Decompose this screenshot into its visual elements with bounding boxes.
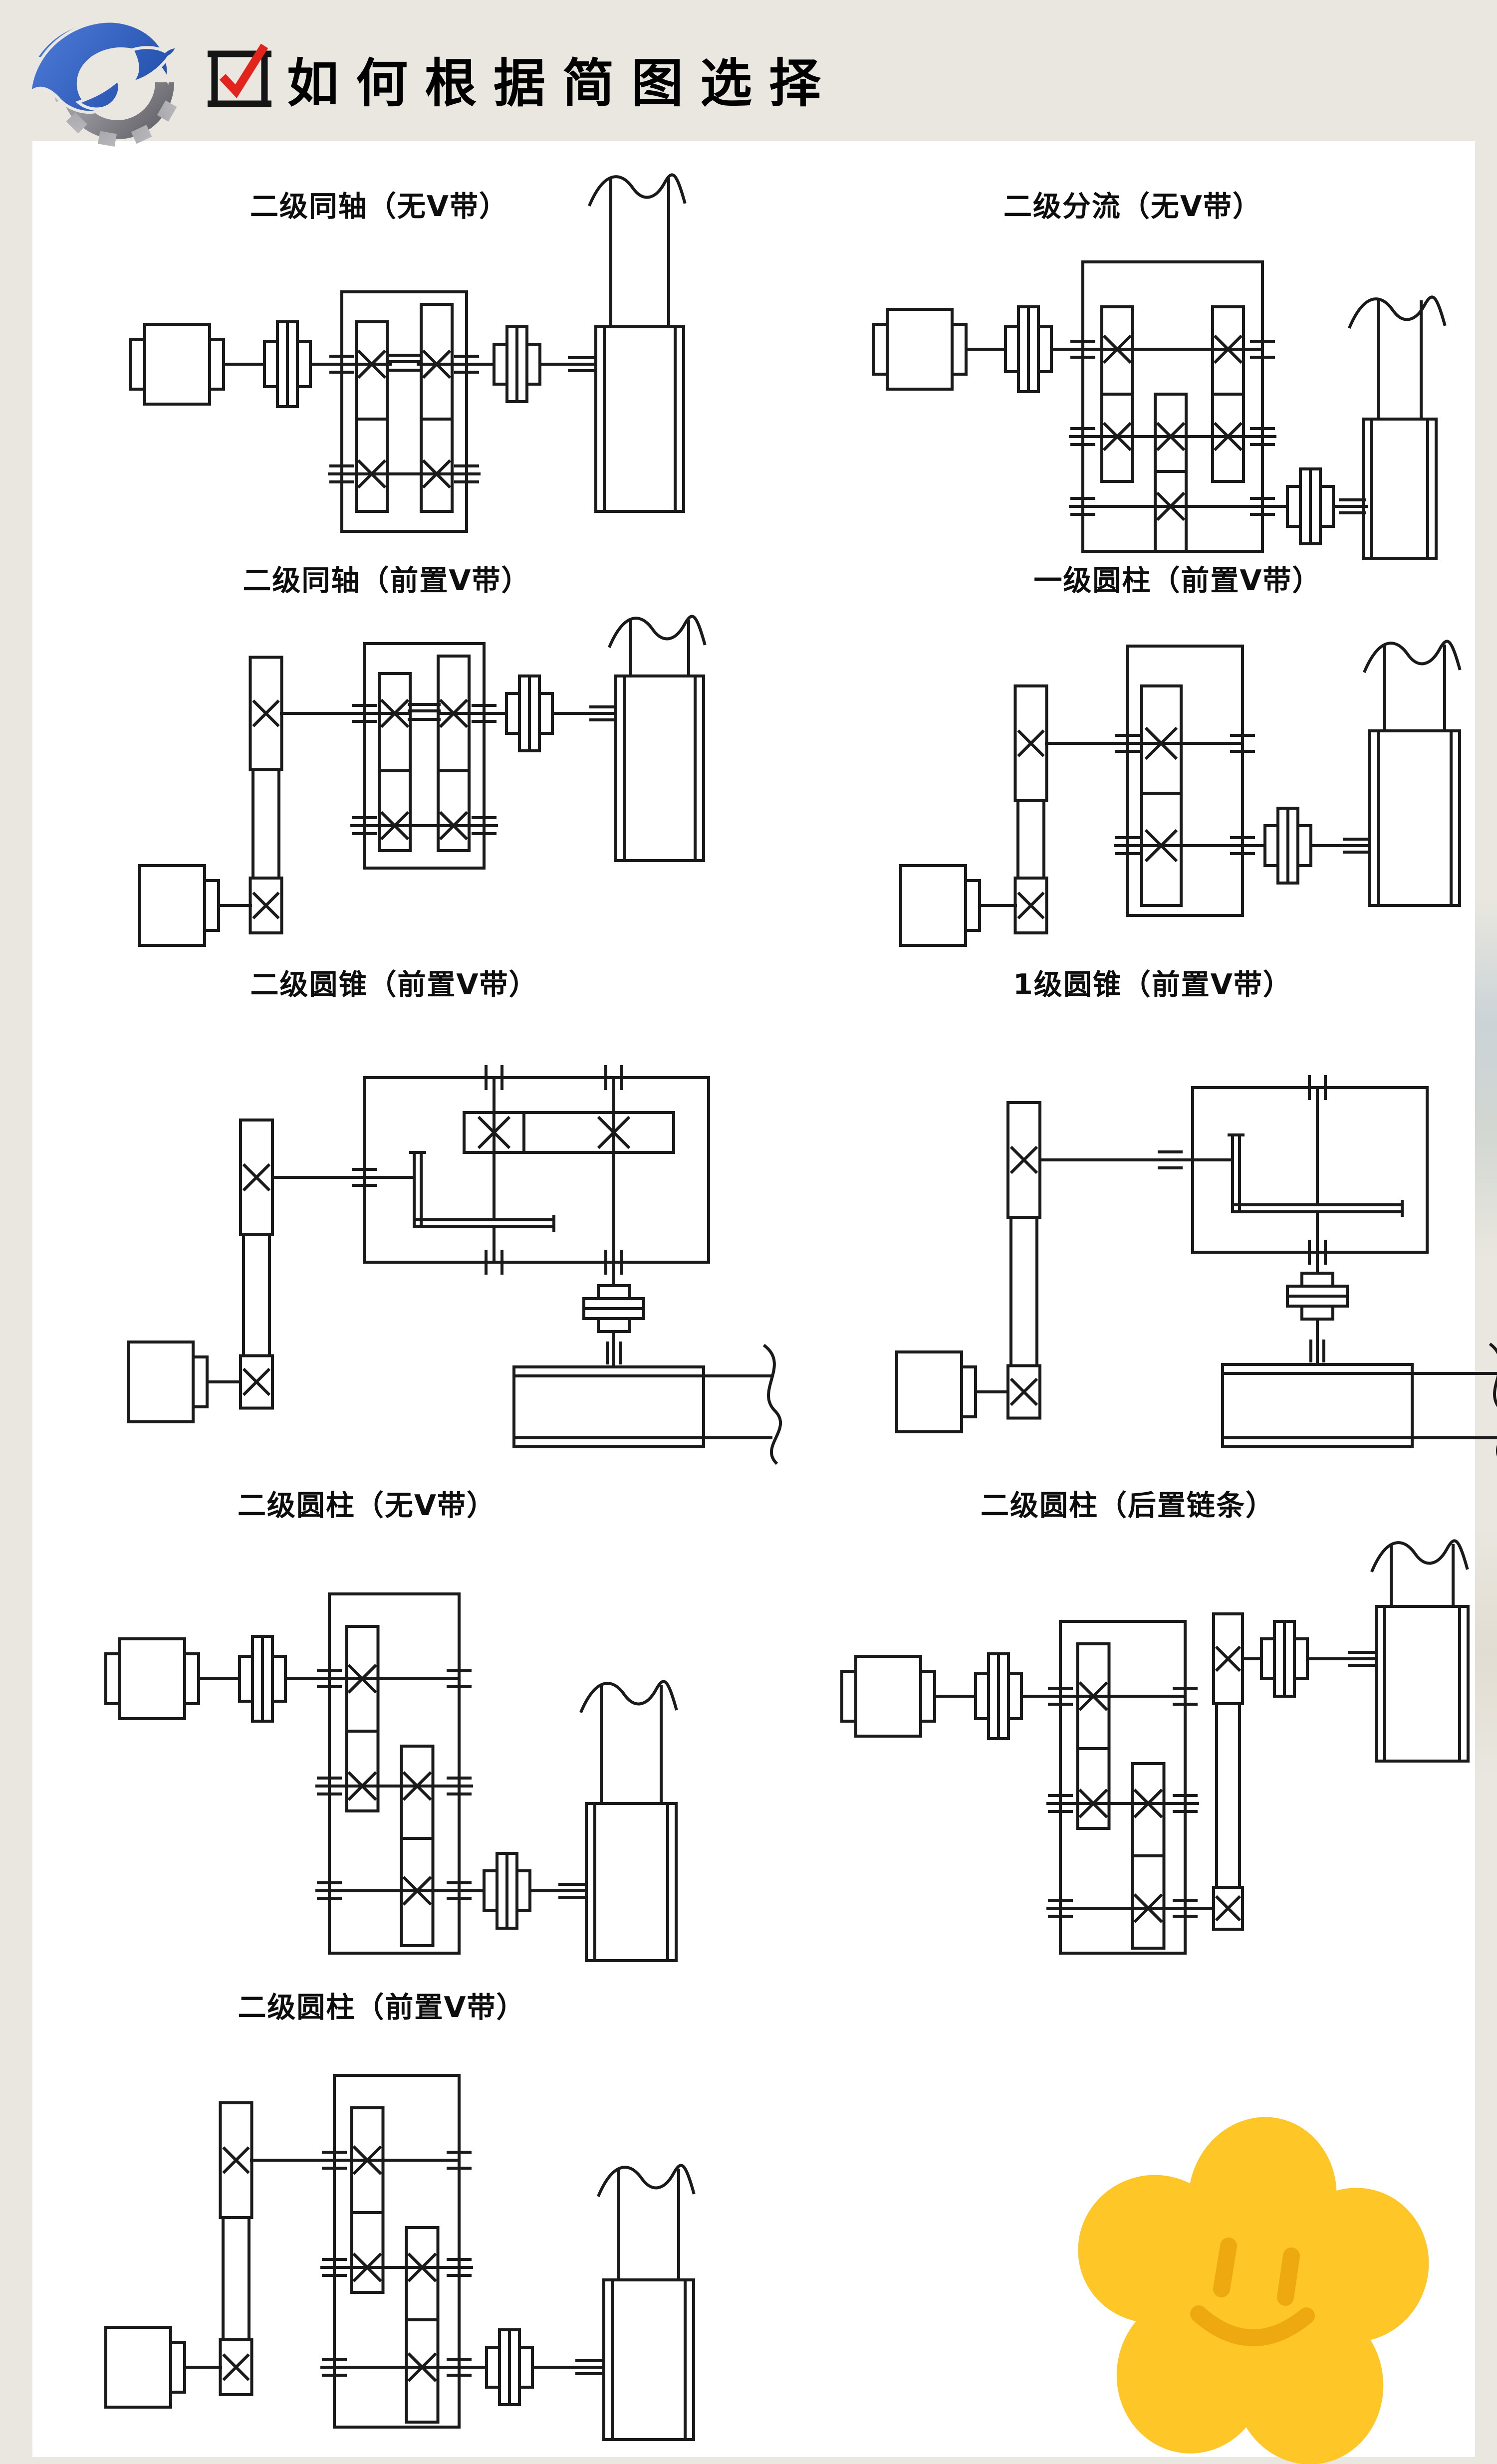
diagram-label-8: 二级圆柱（后置链条） (981, 1483, 1275, 1524)
diagram-split-2stage (863, 227, 1447, 561)
gear-swoosh-logo (20, 0, 210, 150)
diagram-label-2: 二级分流（无V带） (1003, 184, 1262, 224)
page-title: 如何根据简图选择 (287, 41, 838, 116)
diagram-label-9: 二级圆柱（前置V带） (238, 1985, 525, 2025)
diagram-cylindrical-2stage-belt (90, 2055, 744, 2455)
diagram-coaxial-2stage (115, 150, 689, 554)
diagram-cylindrical-2stage (90, 1532, 704, 1971)
smiley-flower-icon (1063, 2115, 1432, 2455)
diagram-label-7: 二级圆柱（无V带） (238, 1483, 496, 1524)
diagram-cylindrical-1stage-belt (893, 606, 1472, 950)
diagram-label-6: 1级圆锥（前置V带） (1013, 962, 1292, 1003)
diagram-label-3: 二级同轴（前置V带） (243, 558, 530, 599)
diagram-label-4: 一级圆柱（前置V带） (1033, 558, 1321, 599)
diagram-cylindrical-2stage-chain (833, 1532, 1487, 1971)
header: 如何根据简图选择 (0, 0, 1497, 141)
diagram-coaxial-2stage-belt (135, 606, 719, 950)
checkbox-checkmark-icon (206, 39, 280, 116)
diagram-label-5: 二级圆锥（前置V带） (250, 962, 538, 1003)
page: 如何根据简图选择 二级同轴（无V带） 二级分流（无V带） 二级同轴（前置V带） … (0, 0, 1497, 2464)
diagram-bevel-1stage-belt (883, 1013, 1497, 1462)
diagram-bevel-2stage-belt (115, 1013, 783, 1462)
